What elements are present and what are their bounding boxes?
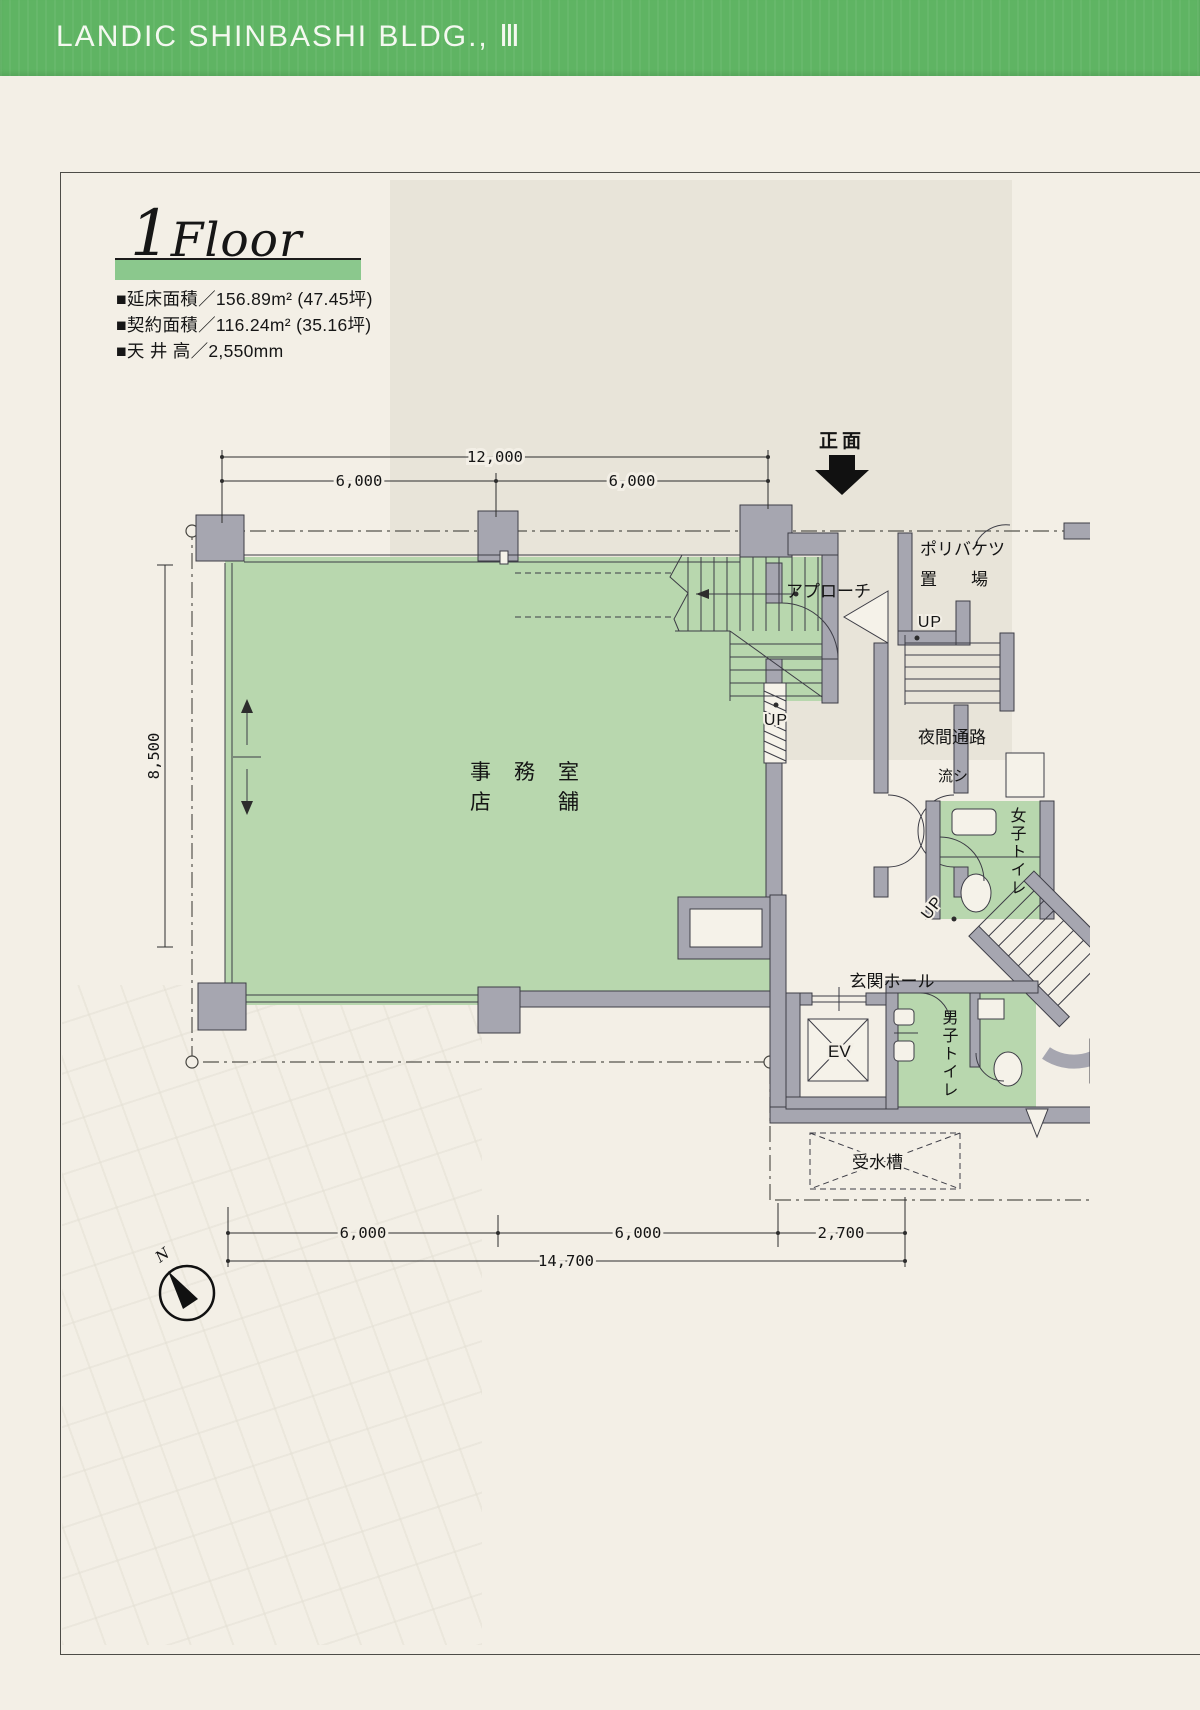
water-tank-label: 受水槽 <box>852 1153 903 1172</box>
water-tank: 受水槽 <box>810 1133 960 1189</box>
north-compass: N <box>151 1243 214 1320</box>
floor-number: 1 <box>130 208 171 260</box>
shop-label: 店 舗 <box>470 791 580 814</box>
dim-bottom-total: 14,700 <box>538 1252 594 1270</box>
spec-total-area: ■延床面積／156.89m² (47.45坪) <box>116 286 373 312</box>
entrance-stair: UP <box>844 591 1014 711</box>
entrance-hall-label: 玄関ホール <box>850 972 935 991</box>
night-passage <box>1006 753 1044 797</box>
womens-toilet-label: 女子トイレ <box>1008 806 1027 897</box>
entrance-up-label: UP <box>918 614 942 631</box>
bucket-label-2: 置 場 <box>920 570 988 589</box>
building-title: LANDIC SHINBASHI BLDG., Ⅲ <box>56 0 522 74</box>
approach-label: アプローチ <box>786 582 871 601</box>
spec-contract-area: ■契約面積／116.24m² (35.16坪) <box>116 312 373 338</box>
elevator-shaft: EV <box>786 987 898 1109</box>
office-label: 事 務 室 <box>470 761 580 784</box>
bucket-label-1: ポリバケツ <box>920 540 1005 559</box>
mens-toilet-label: 男子トイレ <box>940 1009 959 1099</box>
dim-top-right: 6,000 <box>609 472 656 490</box>
front-marker: 正面 <box>815 431 869 495</box>
elevator-label: EV <box>828 1042 851 1061</box>
brochure-page: LANDIC SHINBASHI BLDG., Ⅲ 1Floor ■延床面積／1… <box>0 0 1200 1710</box>
dim-top-left: 6,000 <box>336 472 383 490</box>
dim-bottom-c: 2,700 <box>818 1224 865 1242</box>
floor-plan: UP UP <box>130 405 1090 1345</box>
floor-word: Floor <box>171 221 303 260</box>
dim-bottom-a: 6,000 <box>340 1224 387 1242</box>
dim-top-total: 12,000 <box>467 448 523 466</box>
night-passage-label: 夜間通路 <box>918 728 986 747</box>
north-label: N <box>151 1243 174 1266</box>
dimension-left: 8,500 <box>145 565 173 947</box>
spec-ceiling-height: ■天 井 高／2,550mm <box>116 338 373 364</box>
dim-left-height: 8,500 <box>145 733 163 780</box>
front-label: 正面 <box>819 431 865 452</box>
compass-needle <box>168 1271 198 1309</box>
header-bar: LANDIC SHINBASHI BLDG., Ⅲ <box>0 0 1200 76</box>
sink-label: 流シ <box>938 768 968 785</box>
floor-title: 1Floor <box>130 196 302 260</box>
floor-specs: ■延床面積／156.89m² (47.45坪) ■契約面積／116.24m² (… <box>116 286 373 364</box>
dim-bottom-b: 6,000 <box>615 1224 662 1242</box>
stair-up-label: UP <box>764 712 788 729</box>
dimension-bottom: 6,000 6,000 2,700 14,700 <box>226 1197 907 1270</box>
